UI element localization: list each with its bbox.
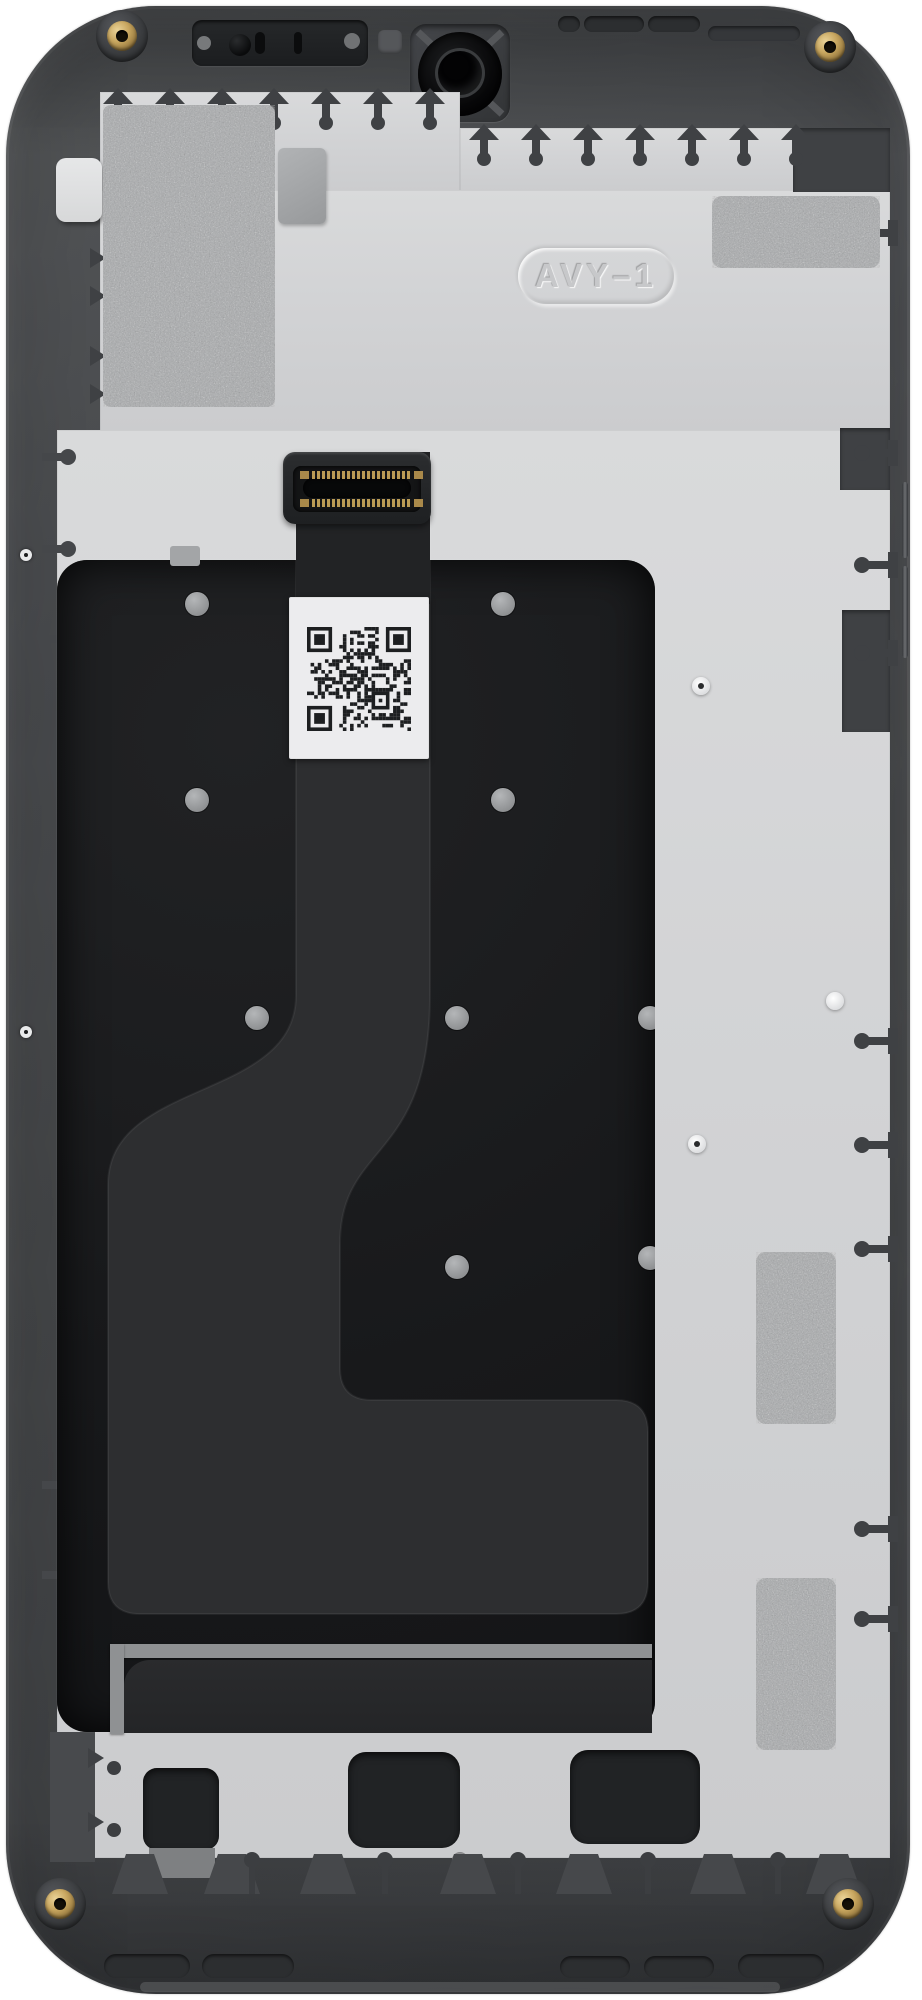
bottom-hole (107, 1761, 121, 1775)
connector-pin (357, 471, 360, 479)
bottom-pin-cutout (770, 1852, 786, 1896)
connector-pin (357, 499, 360, 507)
connector-pin (367, 499, 370, 507)
connector-pin (347, 471, 350, 479)
metal-strip (110, 1644, 652, 1658)
connector-pin (377, 499, 380, 507)
bottom-cutout (348, 1752, 460, 1848)
connector-slot (303, 478, 411, 498)
connector-pin (397, 471, 400, 479)
corner-screw (822, 1878, 874, 1930)
metal-strip-arm (110, 1644, 124, 1734)
connector-pin (327, 499, 330, 507)
connector-pin (407, 499, 410, 507)
connector-pin (397, 499, 400, 507)
connector-pin (387, 471, 390, 479)
connector-pad (414, 499, 423, 507)
connector-pin (372, 499, 375, 507)
bottom-pin-cutout (510, 1852, 526, 1896)
qr-label (289, 597, 429, 759)
bottom-cutout (143, 1768, 219, 1850)
connector-pin (372, 471, 375, 479)
connector-pin (342, 499, 345, 507)
connector-pin (377, 471, 380, 479)
left-wedge-cutout (88, 1748, 104, 1768)
connector-pin (402, 471, 405, 479)
connector-pin (362, 471, 365, 479)
bottom-pin-cutout (244, 1852, 260, 1896)
connector-pin (342, 471, 345, 479)
connector-pad (300, 499, 309, 507)
connector-pin (352, 499, 355, 507)
connector-pin (367, 471, 370, 479)
connector-pad (300, 471, 309, 479)
connector-pin (347, 499, 350, 507)
connector-pin (327, 471, 330, 479)
connector-pin (322, 471, 325, 479)
connector-pin (337, 499, 340, 507)
connector-pin (392, 471, 395, 479)
corner-screw (96, 10, 148, 62)
connector-pin (392, 499, 395, 507)
left-wedge-cutout (88, 1812, 104, 1832)
connector-pin (312, 499, 315, 507)
corner-screw (804, 21, 856, 73)
phone-assembly-photo: AVY–1 (0, 0, 922, 2000)
connector-pin (317, 471, 320, 479)
flex-connector (283, 452, 431, 524)
bottom-hole (107, 1823, 121, 1837)
connector-pin (332, 471, 335, 479)
connector-pin (332, 499, 335, 507)
connector-pin (362, 499, 365, 507)
connector-pin (407, 471, 410, 479)
connector-pin (322, 499, 325, 507)
lower-shield (124, 1660, 652, 1733)
corner-screw (34, 1878, 86, 1930)
bottom-pin-cutout (377, 1852, 393, 1896)
connector-pin (317, 499, 320, 507)
connector-pin (312, 471, 315, 479)
connector-pin (382, 499, 385, 507)
qr-code (307, 627, 411, 731)
connector-pad (414, 471, 423, 479)
connector-pin (352, 471, 355, 479)
connector-pin (382, 471, 385, 479)
bottom-cutout (570, 1750, 700, 1844)
connector-pin (337, 471, 340, 479)
connector-pin (387, 499, 390, 507)
connector-pin (402, 499, 405, 507)
bottom-pin-cutout (640, 1852, 656, 1896)
